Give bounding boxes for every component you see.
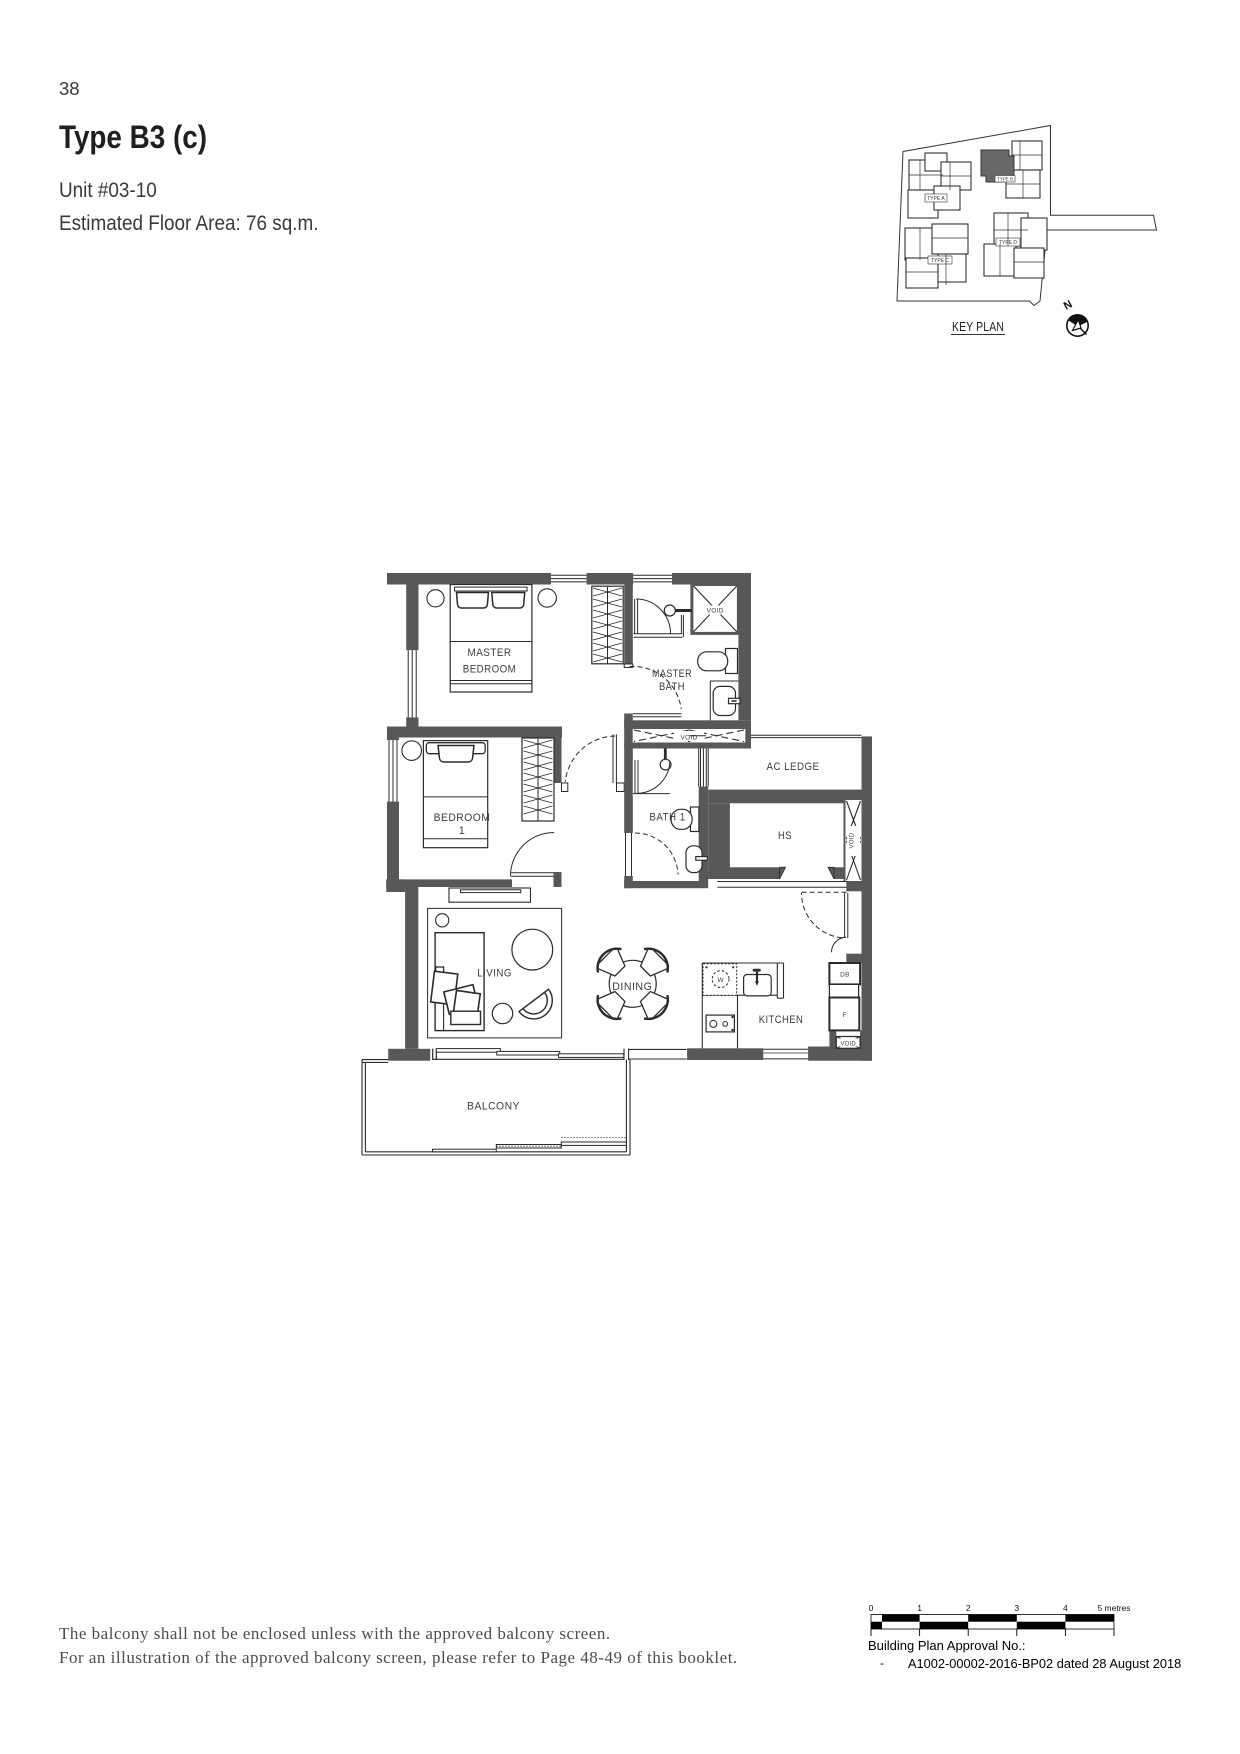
svg-text:VOID: VOID [707, 608, 724, 615]
svg-text:AC LEDGE: AC LEDGE [767, 761, 820, 773]
svg-text:KITCHEN: KITCHEN [759, 1014, 804, 1026]
svg-text:VOID: VOID [849, 832, 855, 848]
svg-text:4: 4 [1063, 1603, 1068, 1613]
svg-text:TYPE A: TYPE A [927, 196, 945, 202]
svg-text:DINING: DINING [612, 981, 652, 993]
svg-text:MASTER: MASTER [468, 647, 512, 659]
svg-text:VOID: VOID [840, 1041, 856, 1047]
svg-text:TYPE C: TYPE C [931, 258, 949, 264]
svg-text:F: F [842, 1012, 846, 1019]
svg-text:3: 3 [1014, 1603, 1019, 1613]
svg-text:BATH 1: BATH 1 [649, 812, 685, 824]
svg-text:BEDROOM: BEDROOM [463, 664, 517, 676]
svg-text:0: 0 [869, 1603, 874, 1613]
svg-text:BEDROOM: BEDROOM [434, 812, 491, 824]
svg-text:2: 2 [966, 1603, 971, 1613]
svg-text:LIVING: LIVING [477, 968, 512, 980]
svg-text:W: W [718, 977, 725, 984]
svg-text:DB: DB [840, 972, 850, 979]
svg-text:5 metres: 5 metres [1097, 1603, 1130, 1613]
svg-text:TYPE B: TYPE B [997, 177, 1013, 182]
svg-text:MASTER: MASTER [652, 668, 692, 680]
svg-text:KEY PLAN: KEY PLAN [952, 320, 1004, 334]
svg-text:1: 1 [917, 1603, 922, 1613]
svg-text:BATH: BATH [659, 681, 685, 693]
svg-text:BALCONY: BALCONY [467, 1101, 520, 1113]
svg-text:1: 1 [459, 825, 466, 837]
svg-text:N: N [1062, 298, 1075, 312]
svg-text:HS: HS [778, 830, 792, 842]
